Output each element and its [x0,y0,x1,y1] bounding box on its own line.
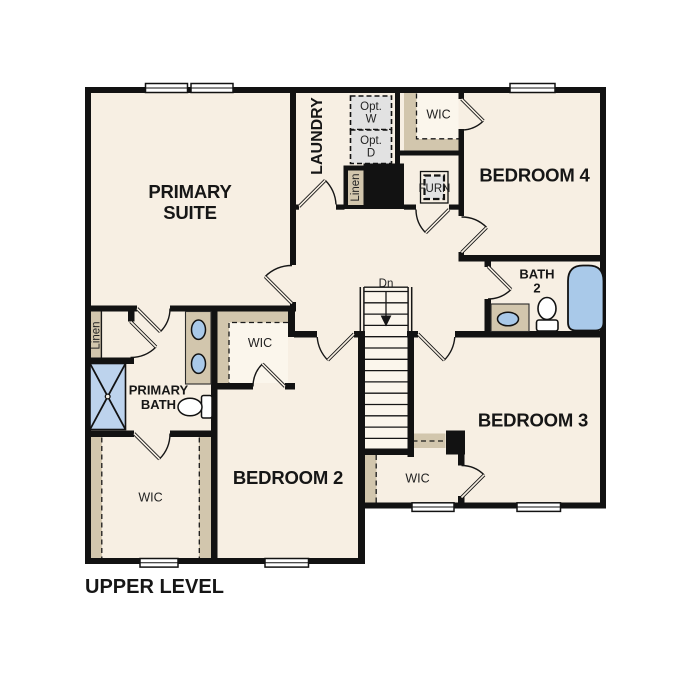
svg-text:2: 2 [533,281,540,296]
svg-text:BATH: BATH [141,397,176,412]
svg-text:WIC: WIC [248,336,272,350]
svg-text:W: W [366,114,377,126]
svg-text:WIC: WIC [426,108,450,122]
svg-text:BEDROOM 2: BEDROOM 2 [233,467,343,488]
svg-text:Linen: Linen [91,321,103,349]
svg-text:FURN: FURN [419,183,451,195]
svg-text:BEDROOM 4: BEDROOM 4 [479,165,590,186]
svg-text:Linen: Linen [350,173,362,201]
svg-text:LAUNDRY: LAUNDRY [309,97,326,175]
svg-text:Dn: Dn [379,278,394,290]
svg-text:BEDROOM 3: BEDROOM 3 [478,410,588,431]
svg-text:Opt.: Opt. [360,101,382,113]
svg-text:SUITE: SUITE [163,202,216,223]
svg-text:WIC: WIC [405,472,429,486]
svg-text:WIC: WIC [138,491,162,505]
svg-text:PRIMARY: PRIMARY [129,383,189,398]
svg-text:PRIMARY: PRIMARY [148,181,232,202]
svg-text:D: D [367,148,375,160]
svg-text:UPPER LEVEL: UPPER LEVEL [85,576,224,598]
svg-text:BATH: BATH [519,267,554,282]
svg-text:Opt.: Opt. [360,135,382,147]
